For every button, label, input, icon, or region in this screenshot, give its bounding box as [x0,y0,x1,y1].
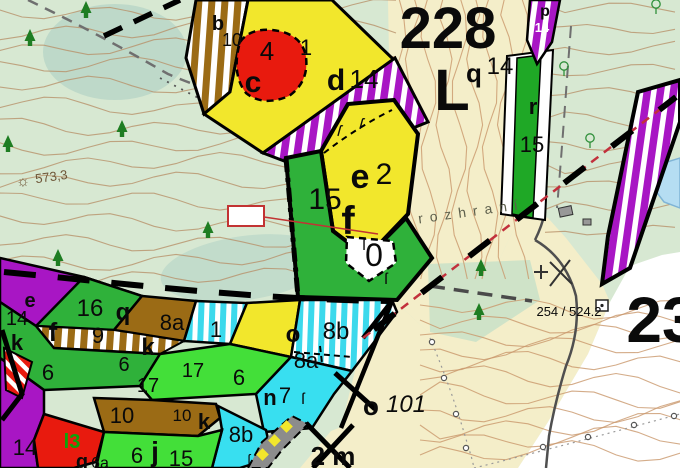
label-stand-p: p [540,3,550,20]
label-cl-q: q [116,299,131,326]
label-cl-6c: 6 [233,365,245,390]
label-compartment-letter: L [434,58,469,123]
label-cl-g: g [76,451,88,468]
trig-point-icon: ☼ [16,173,30,190]
label-cl-f: f [49,317,58,347]
label-stand-o101: o [363,391,379,421]
label-stand-d-age: 14 [350,64,379,94]
label-compartment-number: 228 [400,0,497,61]
label-stand-b-age: 10 [222,30,242,50]
label-stand-f: f [341,199,355,243]
label-stand-2m: 2 m [311,441,356,468]
cl-green-j [96,430,222,468]
label-cl-6d: 6 [131,443,143,468]
label-stand-e2: e [351,158,370,196]
label-cl-e-age: 14 [6,308,28,330]
label-cl-17a: 17 [137,375,159,397]
label-cl-8b2: 8b [229,422,253,447]
label-cl-k1: k [11,330,24,355]
label-stand-d: d [327,64,345,97]
label-cl-k2: k [141,334,155,361]
label-cl-n7: 7 [279,383,291,408]
label-cl-o: o [286,321,301,348]
label-cl-10b: 10 [173,406,192,425]
label-stand-c-age: 1 [300,35,312,60]
label-stand-0: 0 [365,237,383,273]
label-stand-e2-age: 2 [376,158,393,191]
label-cl-9: 9 [92,323,104,348]
label-stand-p-age: 14 [535,20,550,35]
label-cl-j: j [150,436,159,467]
label-cl-6a: 6 [42,360,54,385]
label-stand-q-age: 14 [487,53,514,80]
label-cl-8a2: 8a [294,348,319,373]
label-cl-1: 1 [210,317,222,342]
label-cl-14b: 14 [13,435,37,460]
label-cl-k3: k [198,409,211,434]
label-cl-6b: 6 [118,354,129,376]
label-cl-10a: 10 [110,403,134,428]
label-cl-f-age: 16 [77,295,104,322]
label-stand-r: r [529,94,538,119]
forestry-map: b1041cd14228Lq14p14r15e215f0932573,3☼roz… [0,0,680,468]
building-icon-2 [583,219,591,225]
label-stand-c: c [245,66,262,99]
label-cl-8a1: 8a [160,310,185,335]
label-stand-q: q [466,58,482,88]
label-cl-8b1: 8b [323,318,350,345]
label-survey-point: 254 / 524.2 [536,304,601,319]
label-stand-r-age: 15 [520,132,544,157]
label-cl-15: 15 [169,446,193,468]
label-cl-g6a: 6a [91,455,109,468]
label-stand-f-age: 15 [308,183,341,216]
label-stand-4: 4 [260,36,274,66]
label-cl-l3: l3 [64,431,81,453]
label-cl-n: n [263,385,276,410]
label-adjacent-compartment: 23 [626,284,680,356]
label-stand-o101-num: 101 [386,391,426,418]
label-cl-17b: 17 [182,360,204,382]
